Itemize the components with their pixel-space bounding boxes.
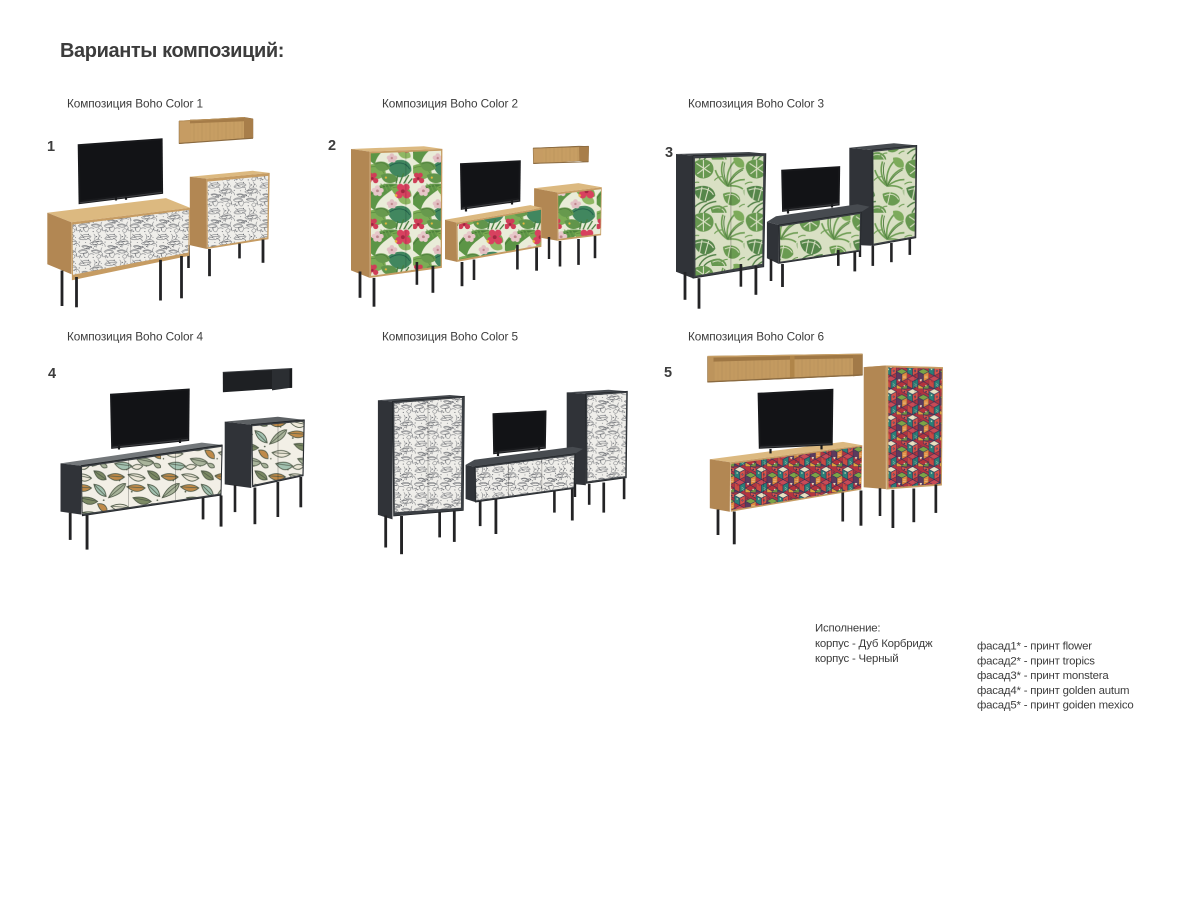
svg-text:Композиция Boho Color 5: Композиция Boho Color 5 [382,330,518,344]
svg-text:2: 2 [328,138,336,154]
svg-text:3: 3 [665,145,673,161]
svg-text:1: 1 [47,139,55,155]
svg-text:фасад3* - принт monstera: фасад3* - принт monstera [977,670,1109,682]
svg-text:Композиция Boho Color 4: Композиция Boho Color 4 [67,330,203,344]
svg-text:4: 4 [48,366,56,382]
svg-text:Композиция Boho Color 6: Композиция Boho Color 6 [688,330,824,344]
svg-text:фасад5* - принт goiden mexico: фасад5* - принт goiden mexico [977,700,1133,712]
svg-text:5: 5 [664,365,672,381]
svg-text:корпус - Черный: корпус - Черный [815,653,898,665]
svg-text:Композиция Boho Color 2: Композиция Boho Color 2 [382,97,518,111]
svg-text:фасад4* - принт golden autum: фасад4* - принт golden autum [977,685,1129,697]
svg-text:корпус - Дуб Корбридж: корпус - Дуб Корбридж [815,638,933,650]
svg-text:Композиция Boho Color 1: Композиция Boho Color 1 [67,97,203,111]
svg-text:Композиция Boho Color 3: Композиция Boho Color 3 [688,97,824,111]
svg-text:Варианты композиций:: Варианты композиций: [60,40,284,62]
svg-text:фасад1* - принт flower: фасад1* - принт flower [977,641,1092,653]
svg-text:фасад2* - принт tropics: фасад2* - принт tropics [977,655,1095,667]
svg-text:Исполнение:: Исполнение: [815,623,880,635]
